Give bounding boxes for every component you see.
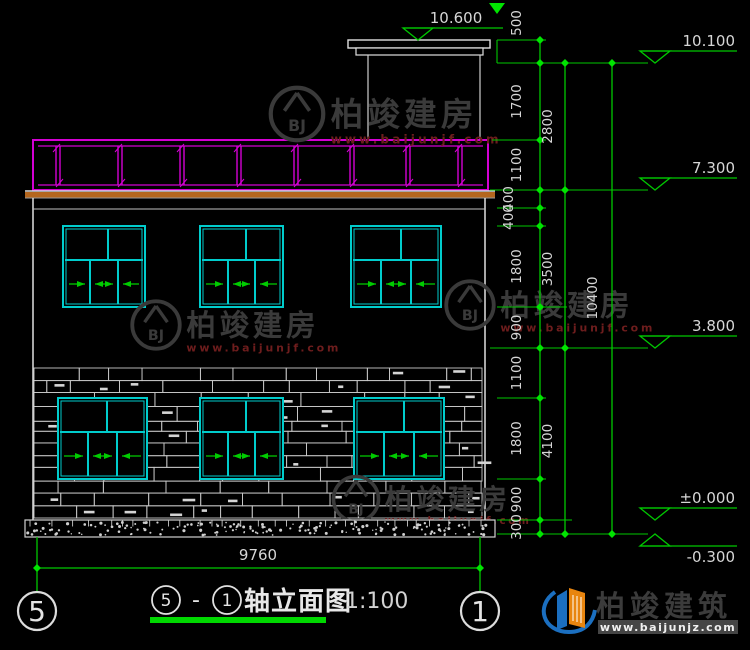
dim-tick xyxy=(536,530,544,538)
ground-speckle xyxy=(448,522,450,524)
stone-block xyxy=(220,481,269,493)
ground-speckle xyxy=(104,524,106,526)
ground-speckle xyxy=(354,521,357,524)
elevation-triangle xyxy=(640,51,670,63)
elevation-label: -0.300 xyxy=(687,548,735,566)
ground-speckle xyxy=(358,532,361,535)
ground-speckle xyxy=(341,530,343,532)
stone-block xyxy=(34,481,58,493)
stone-block xyxy=(299,506,335,518)
ground-speckle xyxy=(159,533,162,536)
ground-speckle xyxy=(334,521,337,524)
ground-speckle xyxy=(239,525,241,527)
ground-speckle xyxy=(130,527,132,529)
stone-block xyxy=(194,506,221,518)
stone-block xyxy=(142,368,200,381)
first-floor-windows xyxy=(58,398,444,479)
elevation-label: ±0.000 xyxy=(679,489,735,507)
ground-speckle xyxy=(209,522,211,524)
ground-speckle xyxy=(224,526,226,528)
ground-speckle xyxy=(315,526,318,529)
stone-chip xyxy=(462,447,468,450)
stone-block xyxy=(109,368,142,381)
dim-tick xyxy=(561,186,569,194)
stone-chip xyxy=(284,400,293,403)
stone-block xyxy=(447,368,472,381)
dim-tick xyxy=(536,204,544,212)
stone-block xyxy=(147,506,194,518)
stone-chip xyxy=(51,498,59,501)
watermark-logo-roof xyxy=(297,93,310,111)
ground-speckle xyxy=(443,534,445,536)
ground-speckle xyxy=(384,521,386,523)
watermark-logo-roof xyxy=(470,286,481,302)
stone-block xyxy=(282,493,330,506)
ground-speckle xyxy=(235,529,236,530)
ground-speckle xyxy=(197,525,199,527)
stone-chip xyxy=(465,396,474,399)
dim-tick xyxy=(561,344,569,352)
ground-speckle xyxy=(78,532,80,534)
stone-block xyxy=(34,506,77,518)
ground-speckle xyxy=(309,532,312,535)
stone-chip xyxy=(170,513,182,516)
dim-tick xyxy=(536,222,544,230)
ground-speckle xyxy=(105,534,107,536)
ground-speckle xyxy=(459,524,461,526)
ground-speckle xyxy=(447,527,450,530)
ground-speckle xyxy=(126,524,129,527)
watermark-monogram: BJ xyxy=(462,308,478,324)
watermark-name: 柏竣建房 xyxy=(331,96,478,134)
stone-block xyxy=(327,456,352,468)
stone-block xyxy=(119,381,162,393)
brand-url: www.baijunjz.com xyxy=(600,621,736,634)
dim-label-bottom: 9760 xyxy=(239,546,277,564)
stone-chip xyxy=(202,509,207,512)
ground-speckle xyxy=(111,525,114,528)
stone-chip xyxy=(54,384,64,387)
window-frame-outer xyxy=(63,226,145,307)
ground-speckle xyxy=(118,525,121,528)
stone-block xyxy=(306,443,355,456)
ground-speckle xyxy=(299,529,302,532)
dim-tick xyxy=(561,530,569,538)
stone-block xyxy=(357,381,405,393)
ground-speckle xyxy=(107,529,110,532)
ground-speckle xyxy=(149,532,151,534)
stone-block xyxy=(201,493,243,506)
stone-chip xyxy=(125,511,136,514)
elevation-svg: BJ柏竣建房www.baijunjf.comBJ柏竣建房www.baijunjf… xyxy=(0,0,750,650)
ground-speckle xyxy=(83,523,86,526)
ground-speckle xyxy=(375,532,377,534)
ground-speckle xyxy=(229,525,232,528)
ground-speckle xyxy=(307,529,309,531)
stone-block xyxy=(34,381,47,393)
dim-label-tier1: 1100 xyxy=(509,148,525,182)
ground-speckle xyxy=(243,532,245,534)
stone-block xyxy=(292,421,342,431)
ground-speckle xyxy=(255,531,257,533)
ground-speckle xyxy=(325,532,328,535)
ground-speckle xyxy=(200,523,203,526)
stone-block xyxy=(367,368,389,381)
ground-speckle xyxy=(33,529,36,532)
dim-label-tier1: 900 xyxy=(509,487,525,513)
ground-speckle xyxy=(136,529,138,531)
drawing-title: 5-1轴立面图1:100 xyxy=(150,586,408,623)
window xyxy=(354,398,444,479)
stone-block xyxy=(405,381,430,393)
stone-block xyxy=(94,493,148,506)
stone-block xyxy=(221,506,253,518)
ground-speckle xyxy=(187,523,189,525)
window-frame-outer xyxy=(200,226,283,307)
ground-speckle xyxy=(121,521,124,524)
stone-block xyxy=(200,368,232,381)
dim-tick xyxy=(33,564,41,572)
elevation-marker: 10.100 xyxy=(640,32,737,63)
elevation-label: 3.800 xyxy=(692,317,735,335)
title-axis-to: 1 xyxy=(222,591,233,611)
ground-speckle xyxy=(365,524,368,527)
stone-block xyxy=(233,368,286,381)
dim-label-tier1: 400 xyxy=(501,204,517,230)
dim-label-tier2: 4100 xyxy=(540,424,556,458)
ground-speckle xyxy=(40,530,42,532)
stone-block xyxy=(463,467,482,481)
elevation-triangle xyxy=(640,336,670,348)
ground-speckle xyxy=(116,522,119,525)
ground-speckle xyxy=(330,524,332,526)
ground-speckle xyxy=(71,533,72,534)
stone-chip xyxy=(48,425,57,428)
watermark-logo-roof xyxy=(145,306,156,322)
dim-label-tier1: 300 xyxy=(509,514,525,540)
watermark-logo-roof xyxy=(459,286,470,302)
stone-chip xyxy=(393,372,403,375)
ground-speckle xyxy=(204,533,206,535)
roof-slab-band xyxy=(25,192,495,198)
ground-speckle xyxy=(99,522,102,525)
stone-block xyxy=(242,493,282,506)
axis-number-right: 1 xyxy=(471,595,489,628)
ground-speckle xyxy=(199,529,202,532)
ground-speckle xyxy=(480,533,482,535)
ground-speckle xyxy=(443,529,445,531)
ground-speckle xyxy=(372,530,373,531)
ground-speckle xyxy=(445,527,446,528)
window xyxy=(351,226,441,307)
stone-block xyxy=(103,481,166,493)
ground-speckle xyxy=(473,531,475,533)
ground-speckle xyxy=(197,522,199,524)
stone-chip xyxy=(162,411,173,414)
window-frame-outer xyxy=(354,398,444,479)
ground-speckle xyxy=(319,522,322,525)
stone-block xyxy=(77,506,113,518)
cad-elevation-drawing: BJ柏竣建房www.baijunjf.comBJ柏竣建房www.baijunjf… xyxy=(0,0,750,650)
ground-speckle xyxy=(31,533,34,536)
watermark-name: 柏竣建房 xyxy=(186,308,319,342)
ground-speckle xyxy=(118,530,121,533)
stone-chip xyxy=(84,511,95,514)
ground-speckle xyxy=(463,526,465,528)
ground-speckle xyxy=(329,526,331,528)
watermark: BJ柏竣建房www.baijunjf.com xyxy=(271,88,502,147)
dim-label-tier1: 1700 xyxy=(509,84,525,118)
top-elevation-marker: 10.600 xyxy=(403,3,505,40)
watermark-url: www.baijunjf.com xyxy=(186,342,341,355)
second-floor-windows xyxy=(63,226,441,307)
brand-logo-building-blue xyxy=(557,590,567,630)
ground-speckle xyxy=(346,532,347,533)
ground-speckle xyxy=(48,523,50,525)
stone-block xyxy=(154,467,200,481)
stone-block xyxy=(471,368,482,381)
ground-speckle xyxy=(144,521,147,524)
ground-speckle xyxy=(393,533,396,536)
title-underline xyxy=(150,617,326,623)
watermark-monogram: BJ xyxy=(288,116,306,135)
ground-speckle xyxy=(357,528,360,531)
ground-speckle xyxy=(182,529,185,532)
bulkhead-roof-step xyxy=(356,48,483,55)
stone-chip xyxy=(439,386,450,389)
elevation-label: 10.600 xyxy=(430,9,483,27)
ground-speckle xyxy=(355,526,357,528)
ground-speckle xyxy=(216,524,219,527)
ground-speckle xyxy=(455,533,457,535)
dim-tick xyxy=(536,59,544,67)
ground-speckle xyxy=(124,527,126,529)
leader-arrow xyxy=(489,3,505,14)
dim-tick xyxy=(536,36,544,44)
railing-outer-frame xyxy=(33,140,488,190)
ground-speckle xyxy=(272,534,274,536)
elevation-triangle xyxy=(640,508,670,520)
ground-speckle xyxy=(426,526,428,528)
watermark-logo-roof xyxy=(156,306,167,322)
stone-block xyxy=(442,456,474,468)
stone-block xyxy=(462,421,482,431)
ground-speckle xyxy=(319,525,321,527)
ground-speckle xyxy=(232,529,234,531)
stone-block xyxy=(439,393,482,407)
bulkhead-roof-slab xyxy=(348,40,490,48)
ground-speckle xyxy=(430,533,432,535)
ground-speckle xyxy=(130,533,132,535)
ground-speckle xyxy=(468,533,471,536)
ground-speckle xyxy=(94,526,96,528)
title-text: 轴立面图 xyxy=(244,586,352,617)
stone-block xyxy=(252,506,298,518)
ground-speckle xyxy=(262,532,264,534)
ground-speckle xyxy=(433,532,435,534)
stone-block xyxy=(145,431,186,443)
ground-speckle xyxy=(289,527,291,529)
ground-speckle xyxy=(314,533,316,535)
watermark-logo-roof xyxy=(356,481,367,496)
ground-speckle xyxy=(233,523,235,525)
ground-speckle xyxy=(419,524,421,526)
ground-speckle xyxy=(424,533,426,535)
dim-label-tier1: 1800 xyxy=(509,421,525,455)
stone-chip xyxy=(293,463,298,466)
window-frame-outer xyxy=(58,398,147,479)
brand-name: 柏竣建筑 xyxy=(596,589,732,623)
window-frame-outer xyxy=(351,226,441,307)
stone-block xyxy=(166,481,220,493)
ground-speckle xyxy=(161,529,163,531)
ground-speckle xyxy=(36,529,38,531)
ground-speckle xyxy=(375,529,377,531)
dim-tick xyxy=(536,344,544,352)
ground-speckle xyxy=(481,527,484,530)
ground-speckle xyxy=(361,525,364,528)
ground-speckle xyxy=(90,524,93,527)
ground-speckle xyxy=(242,525,245,528)
elevation-marker: ±0.000 xyxy=(640,489,737,520)
stone-block xyxy=(269,481,327,493)
watermark: BJ柏竣建房www.baijunjf.com xyxy=(446,281,655,334)
stone-block xyxy=(297,406,357,421)
ground-speckle xyxy=(350,522,353,525)
watermark-monogram: BJ xyxy=(348,501,363,517)
ground-speckle xyxy=(26,531,29,534)
ground-speckle xyxy=(402,533,405,536)
stone-block xyxy=(289,381,329,393)
stone-block xyxy=(58,481,103,493)
ground-speckle xyxy=(236,525,239,528)
stone-block xyxy=(287,456,327,468)
ground-speckle xyxy=(279,529,282,532)
ground-hatch-band xyxy=(25,520,495,537)
title-scale: 1:100 xyxy=(345,589,408,614)
stone-block xyxy=(79,368,108,381)
title-axis-from: 5 xyxy=(161,591,172,611)
ground-speckle xyxy=(304,529,306,531)
stone-block xyxy=(61,493,95,506)
dim-label-tier1: 1800 xyxy=(509,249,525,283)
dim-tick xyxy=(561,59,569,67)
stone-block xyxy=(286,368,316,381)
ground-speckle xyxy=(184,525,187,528)
stone-block xyxy=(164,443,201,456)
window xyxy=(200,398,283,479)
dim-label-tier1: 1100 xyxy=(509,356,525,390)
ground-speckle xyxy=(416,526,419,529)
stone-chip xyxy=(183,499,196,502)
elevation-marker: -0.300 xyxy=(640,534,737,566)
ground-speckle xyxy=(261,526,264,529)
ground-speckle xyxy=(252,530,254,532)
ground-speckle xyxy=(482,533,485,536)
dim-label-tier1: 500 xyxy=(509,10,525,36)
ground-speckle xyxy=(190,523,193,526)
ground-speckle xyxy=(144,528,147,531)
dim-tick xyxy=(536,516,544,524)
dim-label-tier2: 3500 xyxy=(540,252,556,286)
ground-speckle xyxy=(381,528,383,530)
bottom-dimension: 9760 xyxy=(33,537,484,592)
elevation-triangle xyxy=(403,28,433,40)
stone-chip xyxy=(478,461,492,464)
ground-speckle xyxy=(413,526,415,528)
ground-speckle xyxy=(58,529,60,531)
ground-speckle xyxy=(270,530,272,532)
stone-block xyxy=(213,381,264,393)
dim-tick xyxy=(476,564,484,572)
ground-speckle xyxy=(54,533,57,536)
ground-speckle xyxy=(261,523,264,526)
ground-speckle xyxy=(315,529,318,532)
ground-speckle xyxy=(214,532,216,534)
dim-label-tier3: 10400 xyxy=(585,277,601,320)
ground-speckle xyxy=(392,528,395,531)
ground-speckle xyxy=(437,524,440,527)
ground-speckle xyxy=(225,531,227,533)
stone-chip xyxy=(335,496,342,499)
ground-speckle xyxy=(482,525,484,527)
dim-tick xyxy=(608,530,616,538)
window xyxy=(200,226,283,307)
stone-block xyxy=(465,406,482,421)
dim-label-tier2: 2800 xyxy=(540,109,556,143)
stone-block xyxy=(162,421,198,431)
ground-speckle xyxy=(34,522,37,525)
ground-speckle xyxy=(177,526,179,528)
elevation-label: 7.300 xyxy=(692,159,735,177)
dim-tick xyxy=(608,59,616,67)
window-frame-outer xyxy=(200,398,283,479)
stone-block xyxy=(70,381,119,393)
stone-chip xyxy=(169,434,180,437)
stone-chip xyxy=(100,388,108,391)
brand-logo-icon xyxy=(544,588,595,632)
ground-speckle xyxy=(81,534,82,535)
stone-block xyxy=(288,431,346,443)
stone-block xyxy=(264,381,290,393)
watermark-url: www.baijunjf.com xyxy=(331,132,502,146)
ground-speckle xyxy=(249,526,251,528)
stone-chip xyxy=(228,500,237,503)
stone-block xyxy=(329,381,357,393)
ground-speckle xyxy=(156,521,158,523)
dim-tick xyxy=(536,394,544,402)
ground-speckle xyxy=(462,524,464,526)
ground-speckle xyxy=(292,524,293,525)
stone-block xyxy=(430,381,482,393)
title-separator: - xyxy=(192,588,200,613)
stone-block xyxy=(155,393,201,407)
stone-block xyxy=(163,381,213,393)
stone-block xyxy=(317,368,368,381)
watermark-monogram: BJ xyxy=(148,328,164,344)
stone-chip xyxy=(338,385,343,388)
stone-block xyxy=(34,368,79,381)
elevation-marker: 7.300 xyxy=(640,159,737,190)
roof-railing xyxy=(33,140,488,190)
elevation-label: 10.100 xyxy=(683,32,736,50)
ground-speckle xyxy=(134,523,136,525)
ground-speckle xyxy=(216,534,218,536)
dim-tick xyxy=(536,475,544,483)
watermark-logo-roof xyxy=(284,93,297,111)
dim-label-tier1: 900 xyxy=(509,315,525,341)
ground-speckle xyxy=(352,528,354,530)
